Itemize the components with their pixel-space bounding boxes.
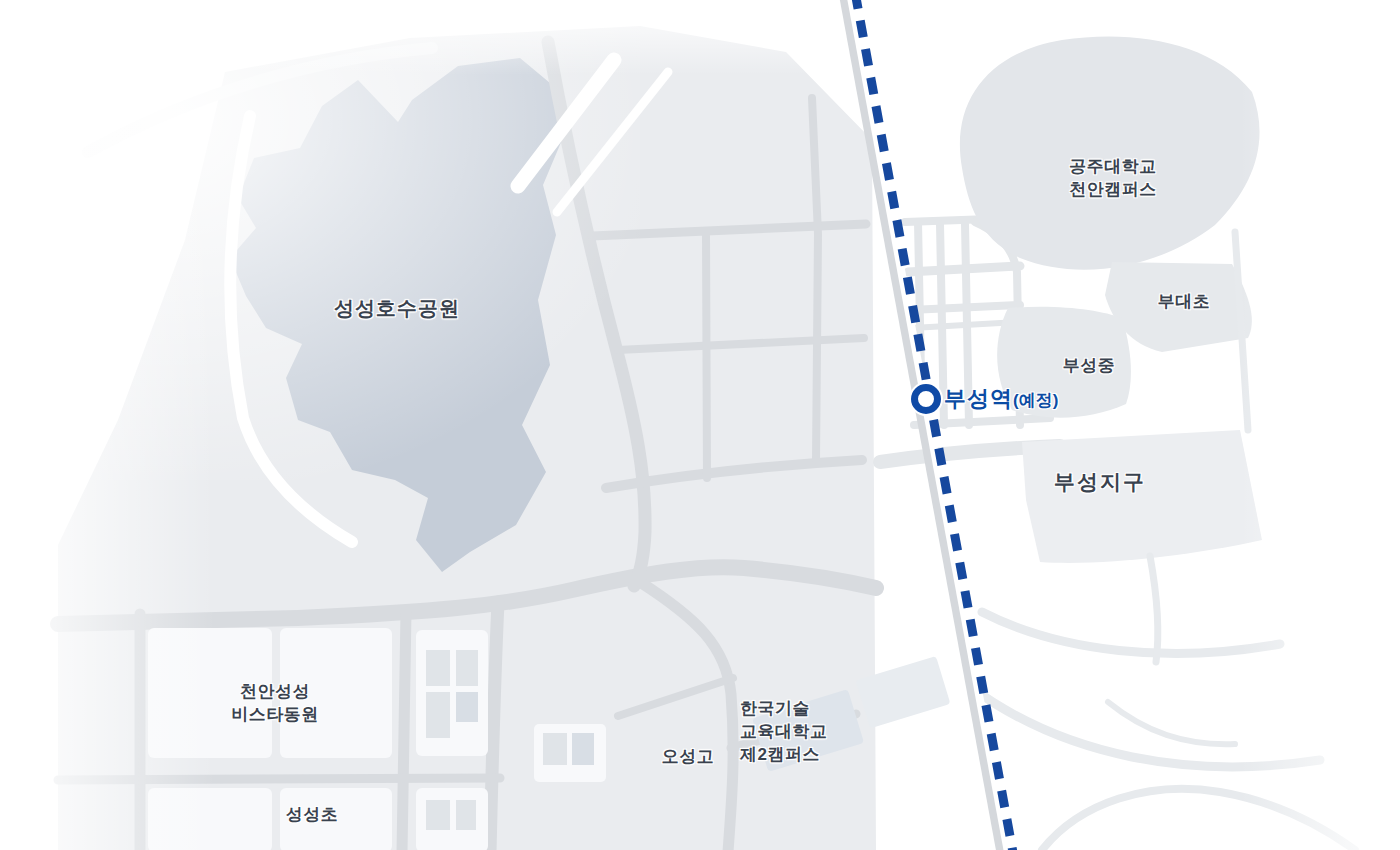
label-seongseong-elementary: 성성초 xyxy=(286,803,339,826)
label-budae-elementary: 부대초 xyxy=(1158,290,1211,313)
label-buseong-middle: 부성중 xyxy=(1063,354,1116,377)
label-line: 천안성성 xyxy=(231,680,319,703)
station-status: (예정) xyxy=(1013,389,1058,412)
label-line: 교육대학교 xyxy=(740,720,828,743)
label-university: 공주대학교 천안캠퍼스 xyxy=(1069,155,1157,201)
label-lake-park: 성성호수공원 xyxy=(334,297,460,320)
label-line: 한국기술 xyxy=(740,697,828,720)
label-oseong-high: 오성고 xyxy=(662,745,715,768)
station-label: 부성역 (예정) xyxy=(944,384,1058,414)
station-name: 부성역 xyxy=(944,384,1013,414)
label-koreatech-campus: 한국기술 교육대학교 제2캠퍼스 xyxy=(740,697,828,766)
label-line: 비스타동원 xyxy=(231,703,319,726)
map-container: 성성호수공원 공주대학교 천안캠퍼스 부대초 부성중 부성역 (예정) 부성지구… xyxy=(0,0,1400,850)
label-buseong-district: 부성지구 xyxy=(1054,470,1146,493)
label-line: 공주대학교 xyxy=(1069,155,1157,178)
label-line: 천안캠퍼스 xyxy=(1069,178,1157,201)
station-marker-icon xyxy=(909,382,943,416)
label-line: 제2캠퍼스 xyxy=(740,743,828,766)
label-vista-apartments: 천안성성 비스타동원 xyxy=(231,680,319,726)
map-canvas xyxy=(0,0,1400,850)
